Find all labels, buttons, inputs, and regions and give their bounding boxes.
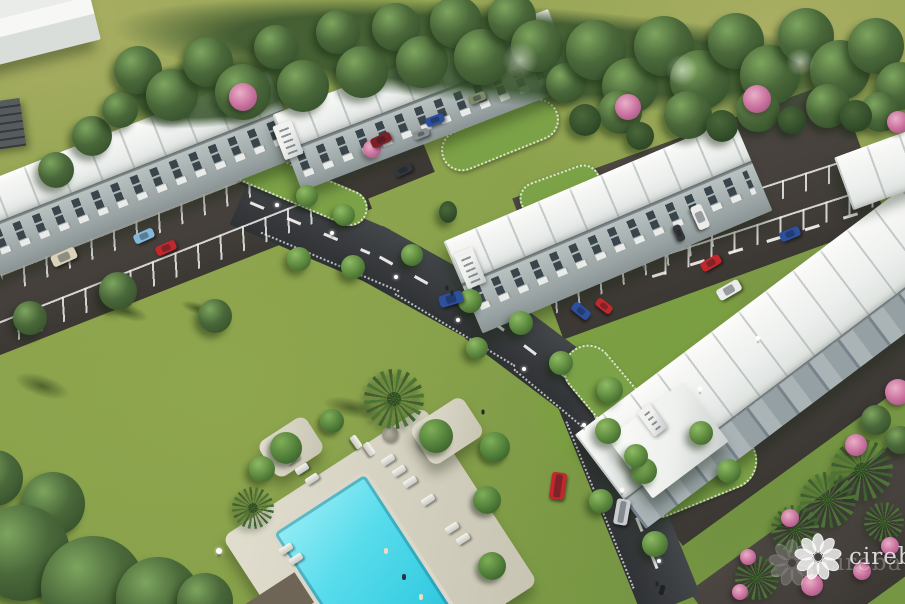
palm-tree: [232, 487, 274, 529]
lamp-post: [657, 559, 661, 563]
pink-bush: [885, 379, 905, 405]
lamp-post: [698, 387, 702, 391]
lamp-post: [522, 367, 526, 371]
tree: [13, 301, 47, 335]
aerial-rendering: cireba cireba: [0, 0, 905, 604]
pink-bush: [740, 549, 756, 565]
tree: [102, 92, 138, 128]
tree: [396, 36, 448, 88]
tree: [589, 489, 613, 513]
tree: [861, 405, 891, 435]
brand-text: cireba: [849, 544, 905, 570]
swimmer: [402, 574, 406, 580]
tree: [38, 152, 74, 188]
tree: [198, 299, 232, 333]
tree: [626, 122, 654, 150]
lamp-post: [330, 231, 334, 235]
tree: [466, 337, 488, 359]
person: [446, 286, 449, 291]
person: [482, 410, 485, 415]
tree: [706, 110, 738, 142]
person: [451, 291, 454, 296]
shrub: [320, 409, 344, 433]
lamp-post: [456, 318, 460, 322]
shrub: [480, 432, 510, 462]
pink-flowering-tree: [743, 85, 771, 113]
shrub: [270, 432, 302, 464]
palm-tree: [364, 369, 424, 429]
swimmer: [384, 548, 388, 554]
pink-flowering-tree: [887, 111, 905, 133]
flowering-tree-highlight: [786, 48, 814, 76]
tree: [595, 418, 621, 444]
pink-bush: [845, 434, 867, 456]
swimmer: [419, 594, 423, 600]
tree: [664, 91, 712, 139]
tree: [401, 244, 423, 266]
pink-bush: [781, 509, 799, 527]
tree: [689, 421, 713, 445]
lamp-post: [275, 203, 279, 207]
lamp-post: [756, 336, 760, 340]
shrub: [478, 552, 506, 580]
tree: [287, 247, 311, 271]
watermark: cireba: [792, 531, 905, 583]
tree: [717, 459, 741, 483]
tree: [624, 444, 648, 468]
tree: [840, 100, 872, 132]
tree: [277, 60, 329, 112]
shrub: [419, 419, 453, 453]
shrub: [473, 486, 501, 514]
tree: [333, 204, 355, 226]
pink-flowering-tree: [229, 83, 257, 111]
tree: [549, 351, 573, 375]
tree: [296, 185, 318, 207]
tree: [642, 531, 668, 557]
tree: [341, 255, 365, 279]
pink-bush: [732, 584, 748, 600]
tree: [99, 272, 137, 310]
tree: [249, 456, 275, 482]
tree: [778, 106, 806, 134]
tree: [509, 311, 533, 335]
person: [656, 582, 659, 587]
lamp-post: [394, 275, 398, 279]
tree: [569, 104, 601, 136]
flower-icon: [792, 531, 844, 583]
lamp-post: [620, 488, 624, 492]
cypress-tree: [439, 201, 457, 223]
flowering-tree-highlight: [666, 54, 698, 86]
tree: [336, 46, 388, 98]
lamp-globe: [216, 548, 222, 554]
tree: [597, 377, 623, 403]
flowering-tree-highlight: [502, 42, 538, 78]
lamp-post: [582, 423, 586, 427]
pink-flowering-tree: [615, 94, 641, 120]
